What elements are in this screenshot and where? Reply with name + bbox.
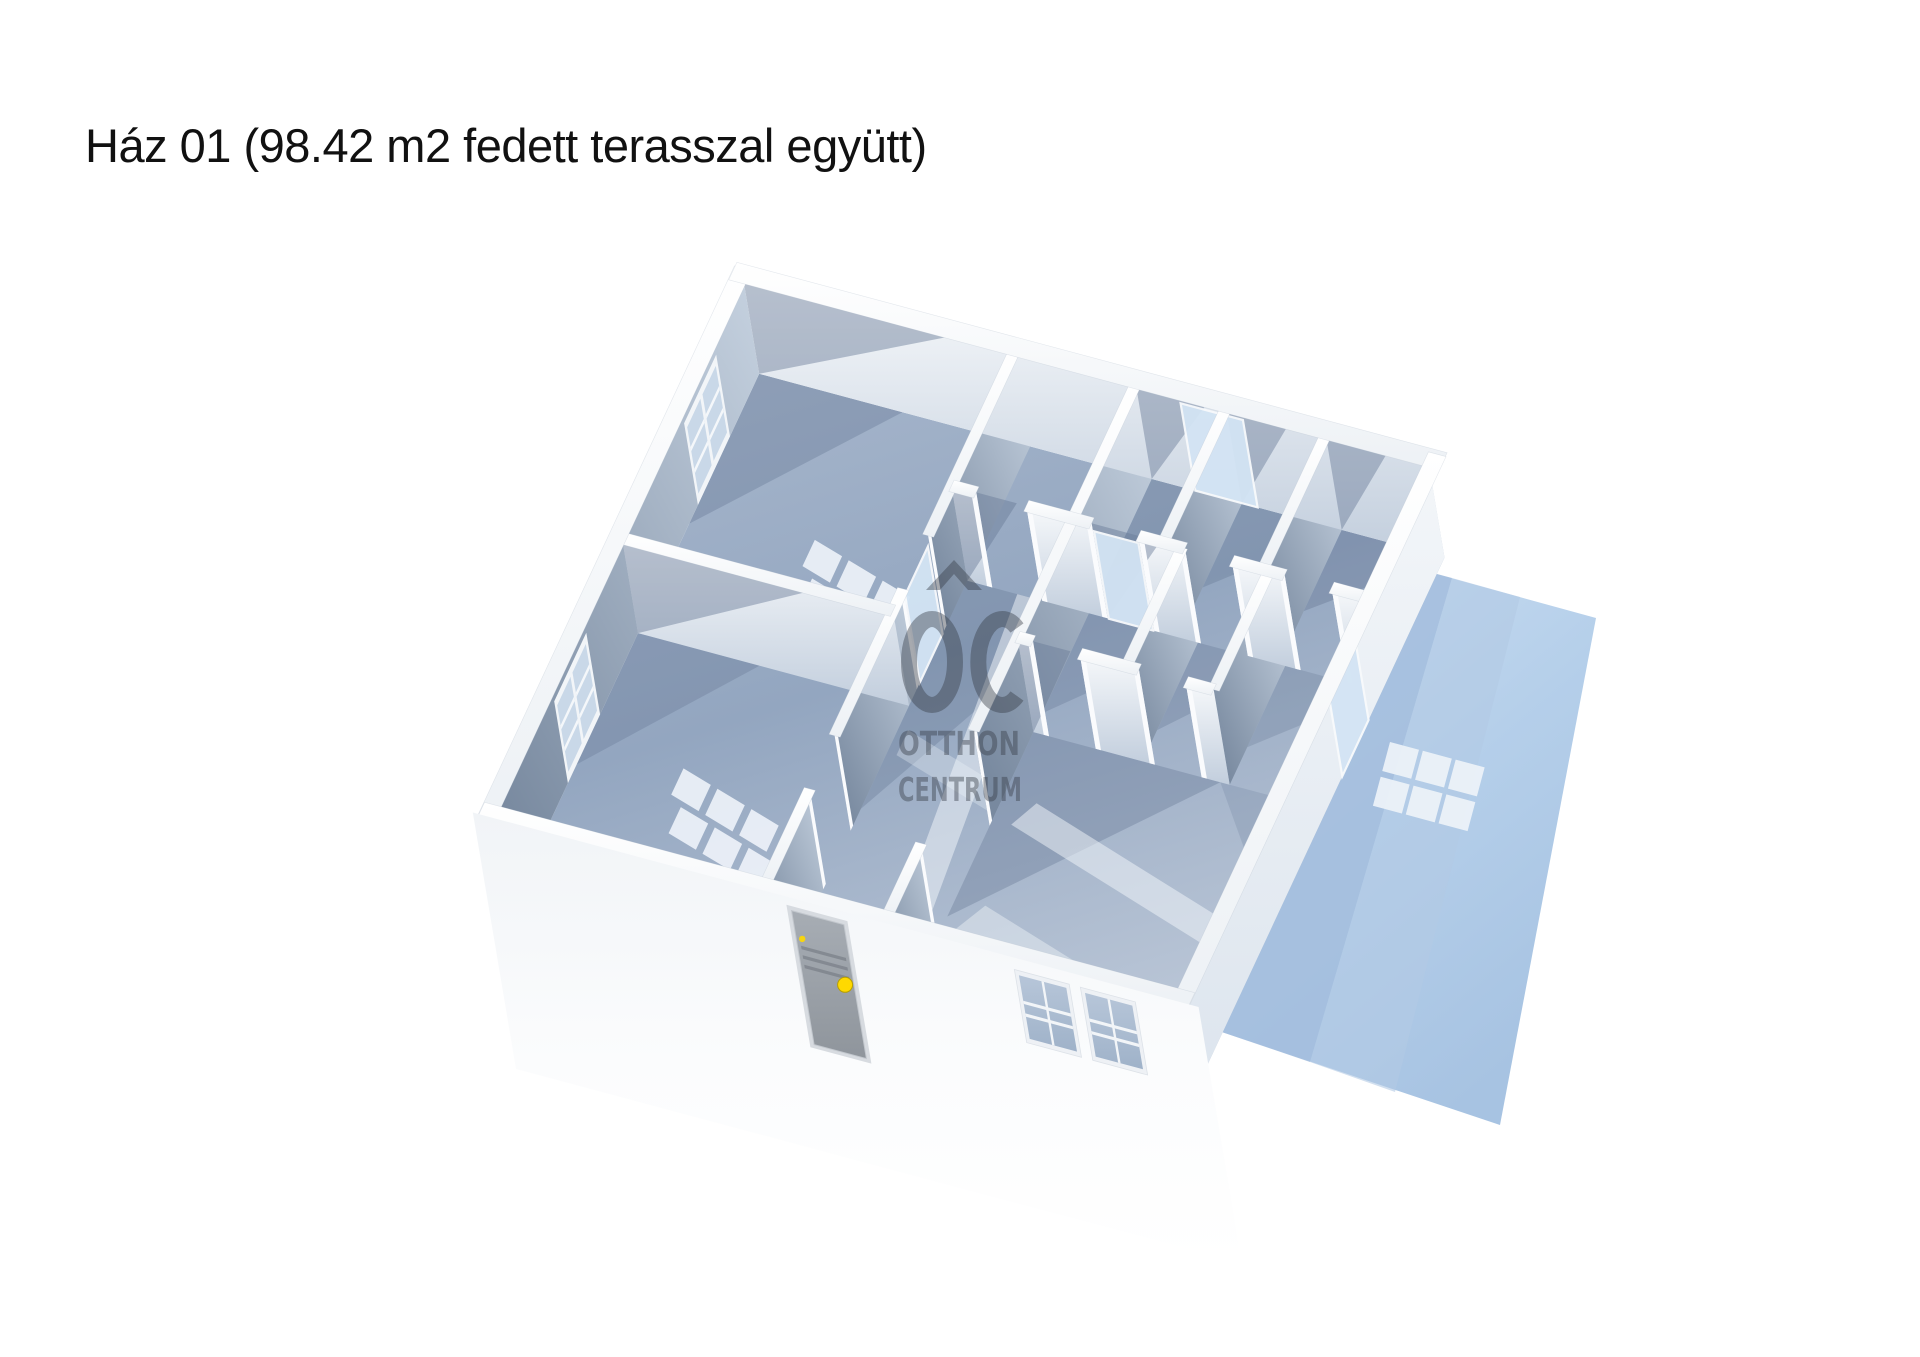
page-title: Ház 01 (98.42 m2 fedett terasszal együtt…	[85, 118, 927, 173]
door-knob	[838, 977, 853, 992]
page: OTTHONCENTRUM Ház 01 (98.42 m2 fedett te…	[0, 0, 1920, 1357]
logo-text-centrum: CENTRUM	[898, 770, 1022, 809]
floorplan-render: OTTHONCENTRUM	[0, 0, 1920, 1357]
logo-text-otthon: OTTHON	[898, 724, 1020, 763]
door-keyhole	[799, 936, 805, 942]
